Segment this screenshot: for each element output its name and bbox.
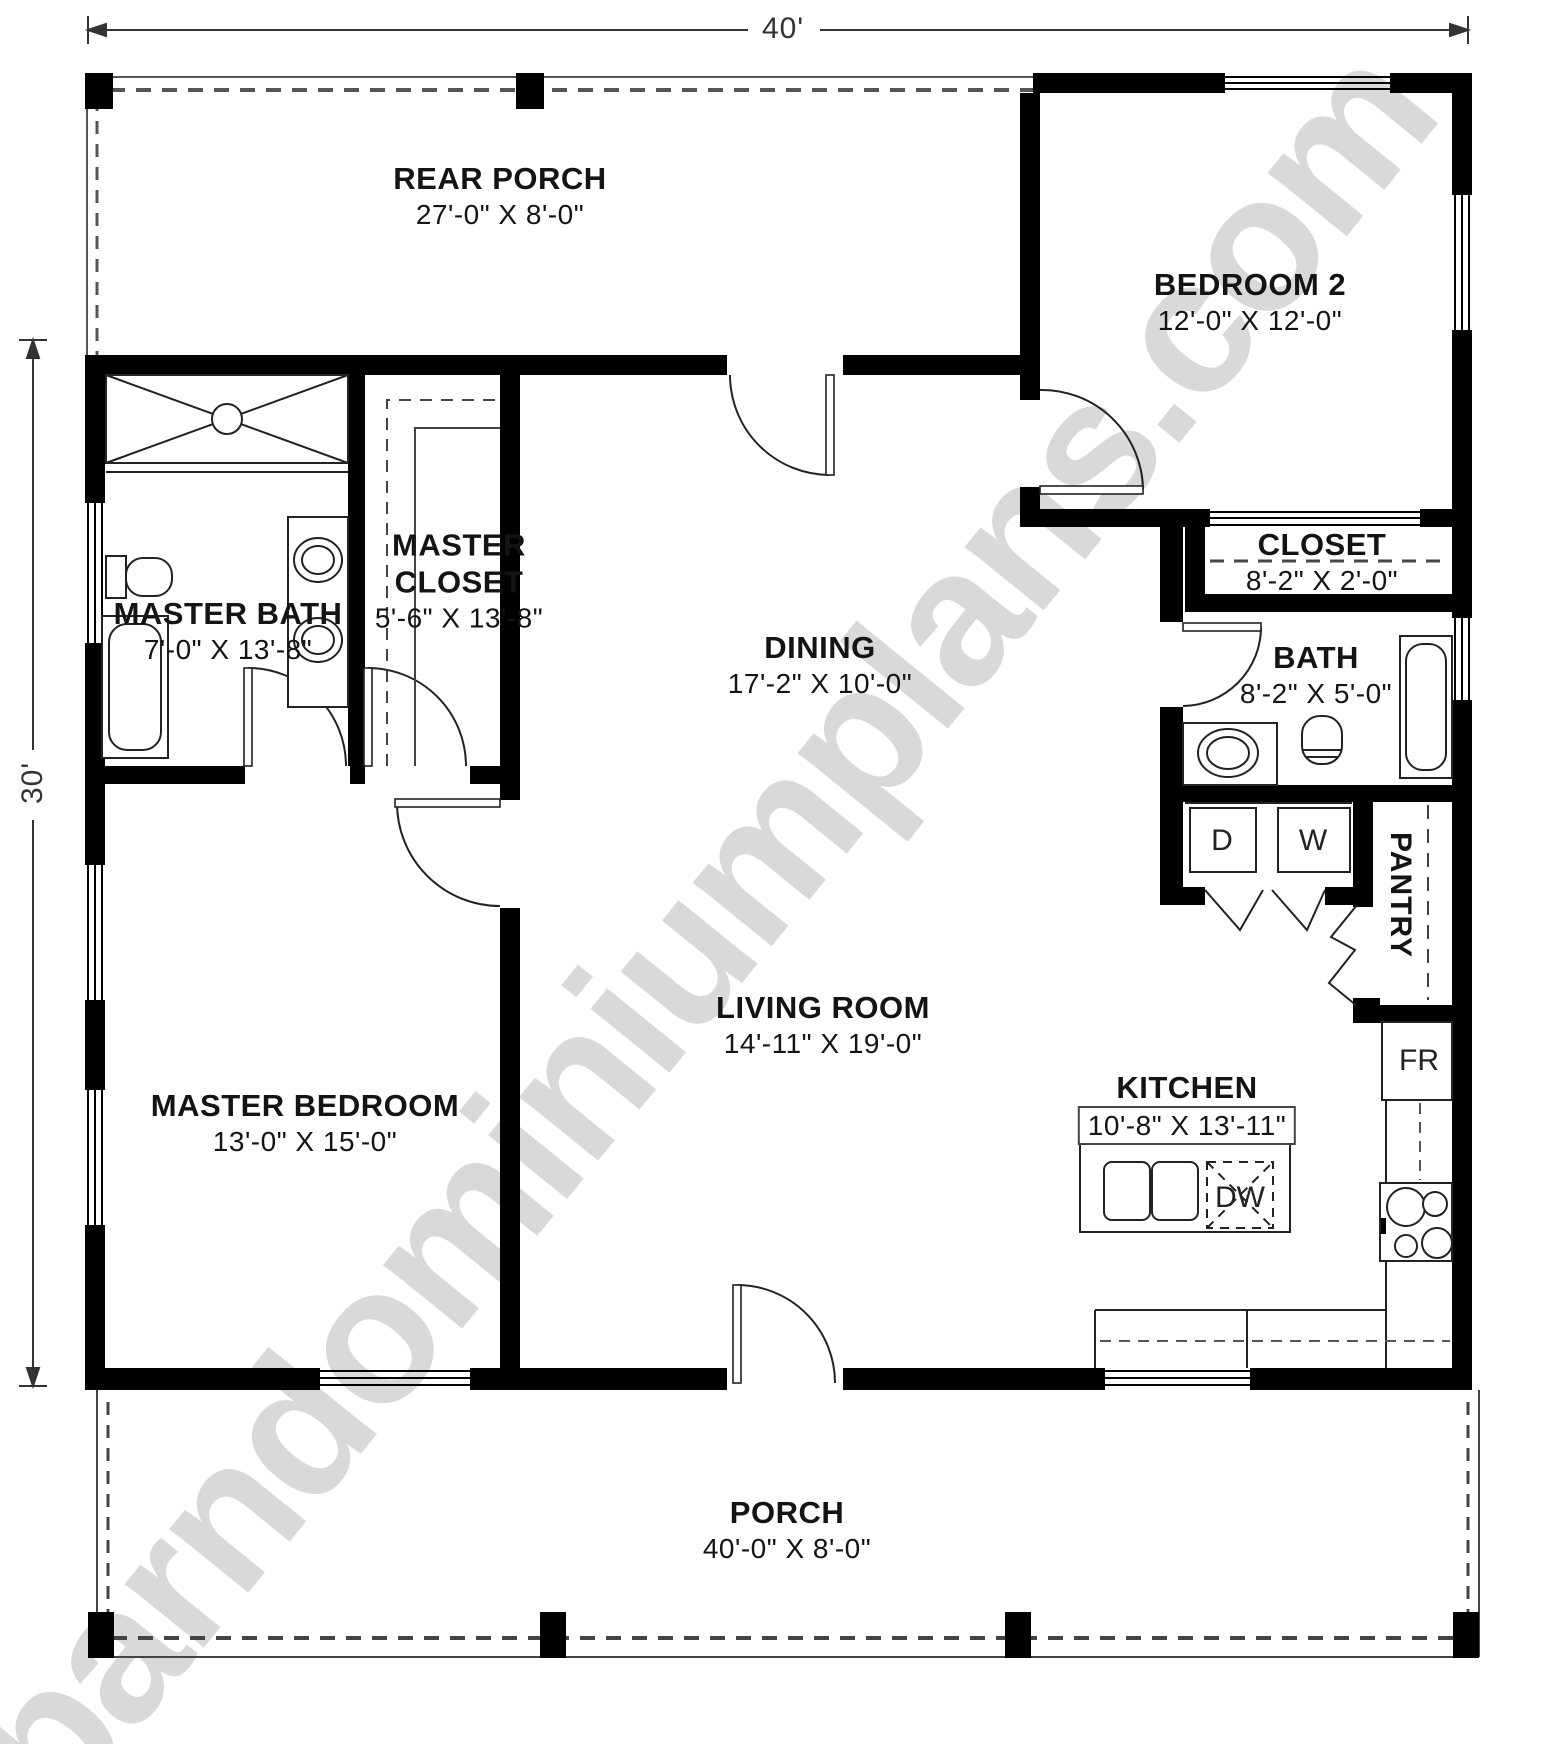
porch-posts <box>88 1612 1479 1658</box>
room-label-rear-porch: REAR PORCH 27'-0" X 8'-0" <box>393 160 606 232</box>
room-label-master-bath: MASTER BATH 7'-0" X 13'-8" <box>114 595 343 667</box>
room-label-master-bedroom: MASTER BEDROOM 13'-0" X 15'-0" <box>151 1087 459 1159</box>
room-label-closet: CLOSET 8'-2" X 2'-0" <box>1246 526 1398 598</box>
master-bath-fixtures <box>102 375 348 758</box>
room-label-living-room: LIVING ROOM 14'-11" X 19'-0" <box>716 989 930 1061</box>
closet-bypass-door <box>1210 512 1420 525</box>
room-label-dining: DINING 17'-2" X 10'-0" <box>728 629 912 701</box>
bedroom2-door-swing <box>1040 390 1143 489</box>
island-sink <box>1152 1162 1198 1220</box>
room-label-master-closet: MASTER CLOSET 5'-6" X 13'-8" <box>375 527 543 636</box>
master-closet-door-swing <box>368 668 466 766</box>
master-bedroom-door-swing <box>397 803 500 906</box>
shower-drain <box>212 404 242 434</box>
front-door-swing <box>737 1285 835 1383</box>
depth-dimension-label: 30' <box>16 762 50 804</box>
dishwasher-label: DW <box>1215 1181 1265 1215</box>
pantry-bifold-door <box>1329 905 1357 1006</box>
toilet-bowl <box>126 558 172 596</box>
laundry-appliances <box>1185 803 1352 930</box>
rear-door-swing <box>730 375 830 475</box>
dryer-label: D <box>1211 824 1233 858</box>
room-label-pantry: PANTRY <box>1383 832 1417 958</box>
washer-label: W <box>1299 824 1327 858</box>
laundry-bifold-door <box>1205 890 1263 930</box>
room-label-bath: BATH 8'-2" X 5'-0" <box>1240 639 1392 711</box>
floor-plan-drawing <box>0 0 1556 1744</box>
floor-plan-page: barndominiumplans.com <box>0 0 1556 1744</box>
room-label-porch: PORCH 40'-0" X 8'-0" <box>703 1494 871 1566</box>
toilet-tank <box>106 556 126 598</box>
laundry-bifold-door <box>1272 890 1325 930</box>
width-dimension-label: 40' <box>762 12 804 46</box>
island-sink <box>1104 1162 1150 1220</box>
room-label-bedroom-2: BEDROOM 2 12'-0" X 12'-0" <box>1154 266 1346 338</box>
room-label-kitchen: KITCHEN 10'-8" X 13'-11" <box>1078 1069 1296 1145</box>
fridge-label: FR <box>1399 1044 1439 1078</box>
